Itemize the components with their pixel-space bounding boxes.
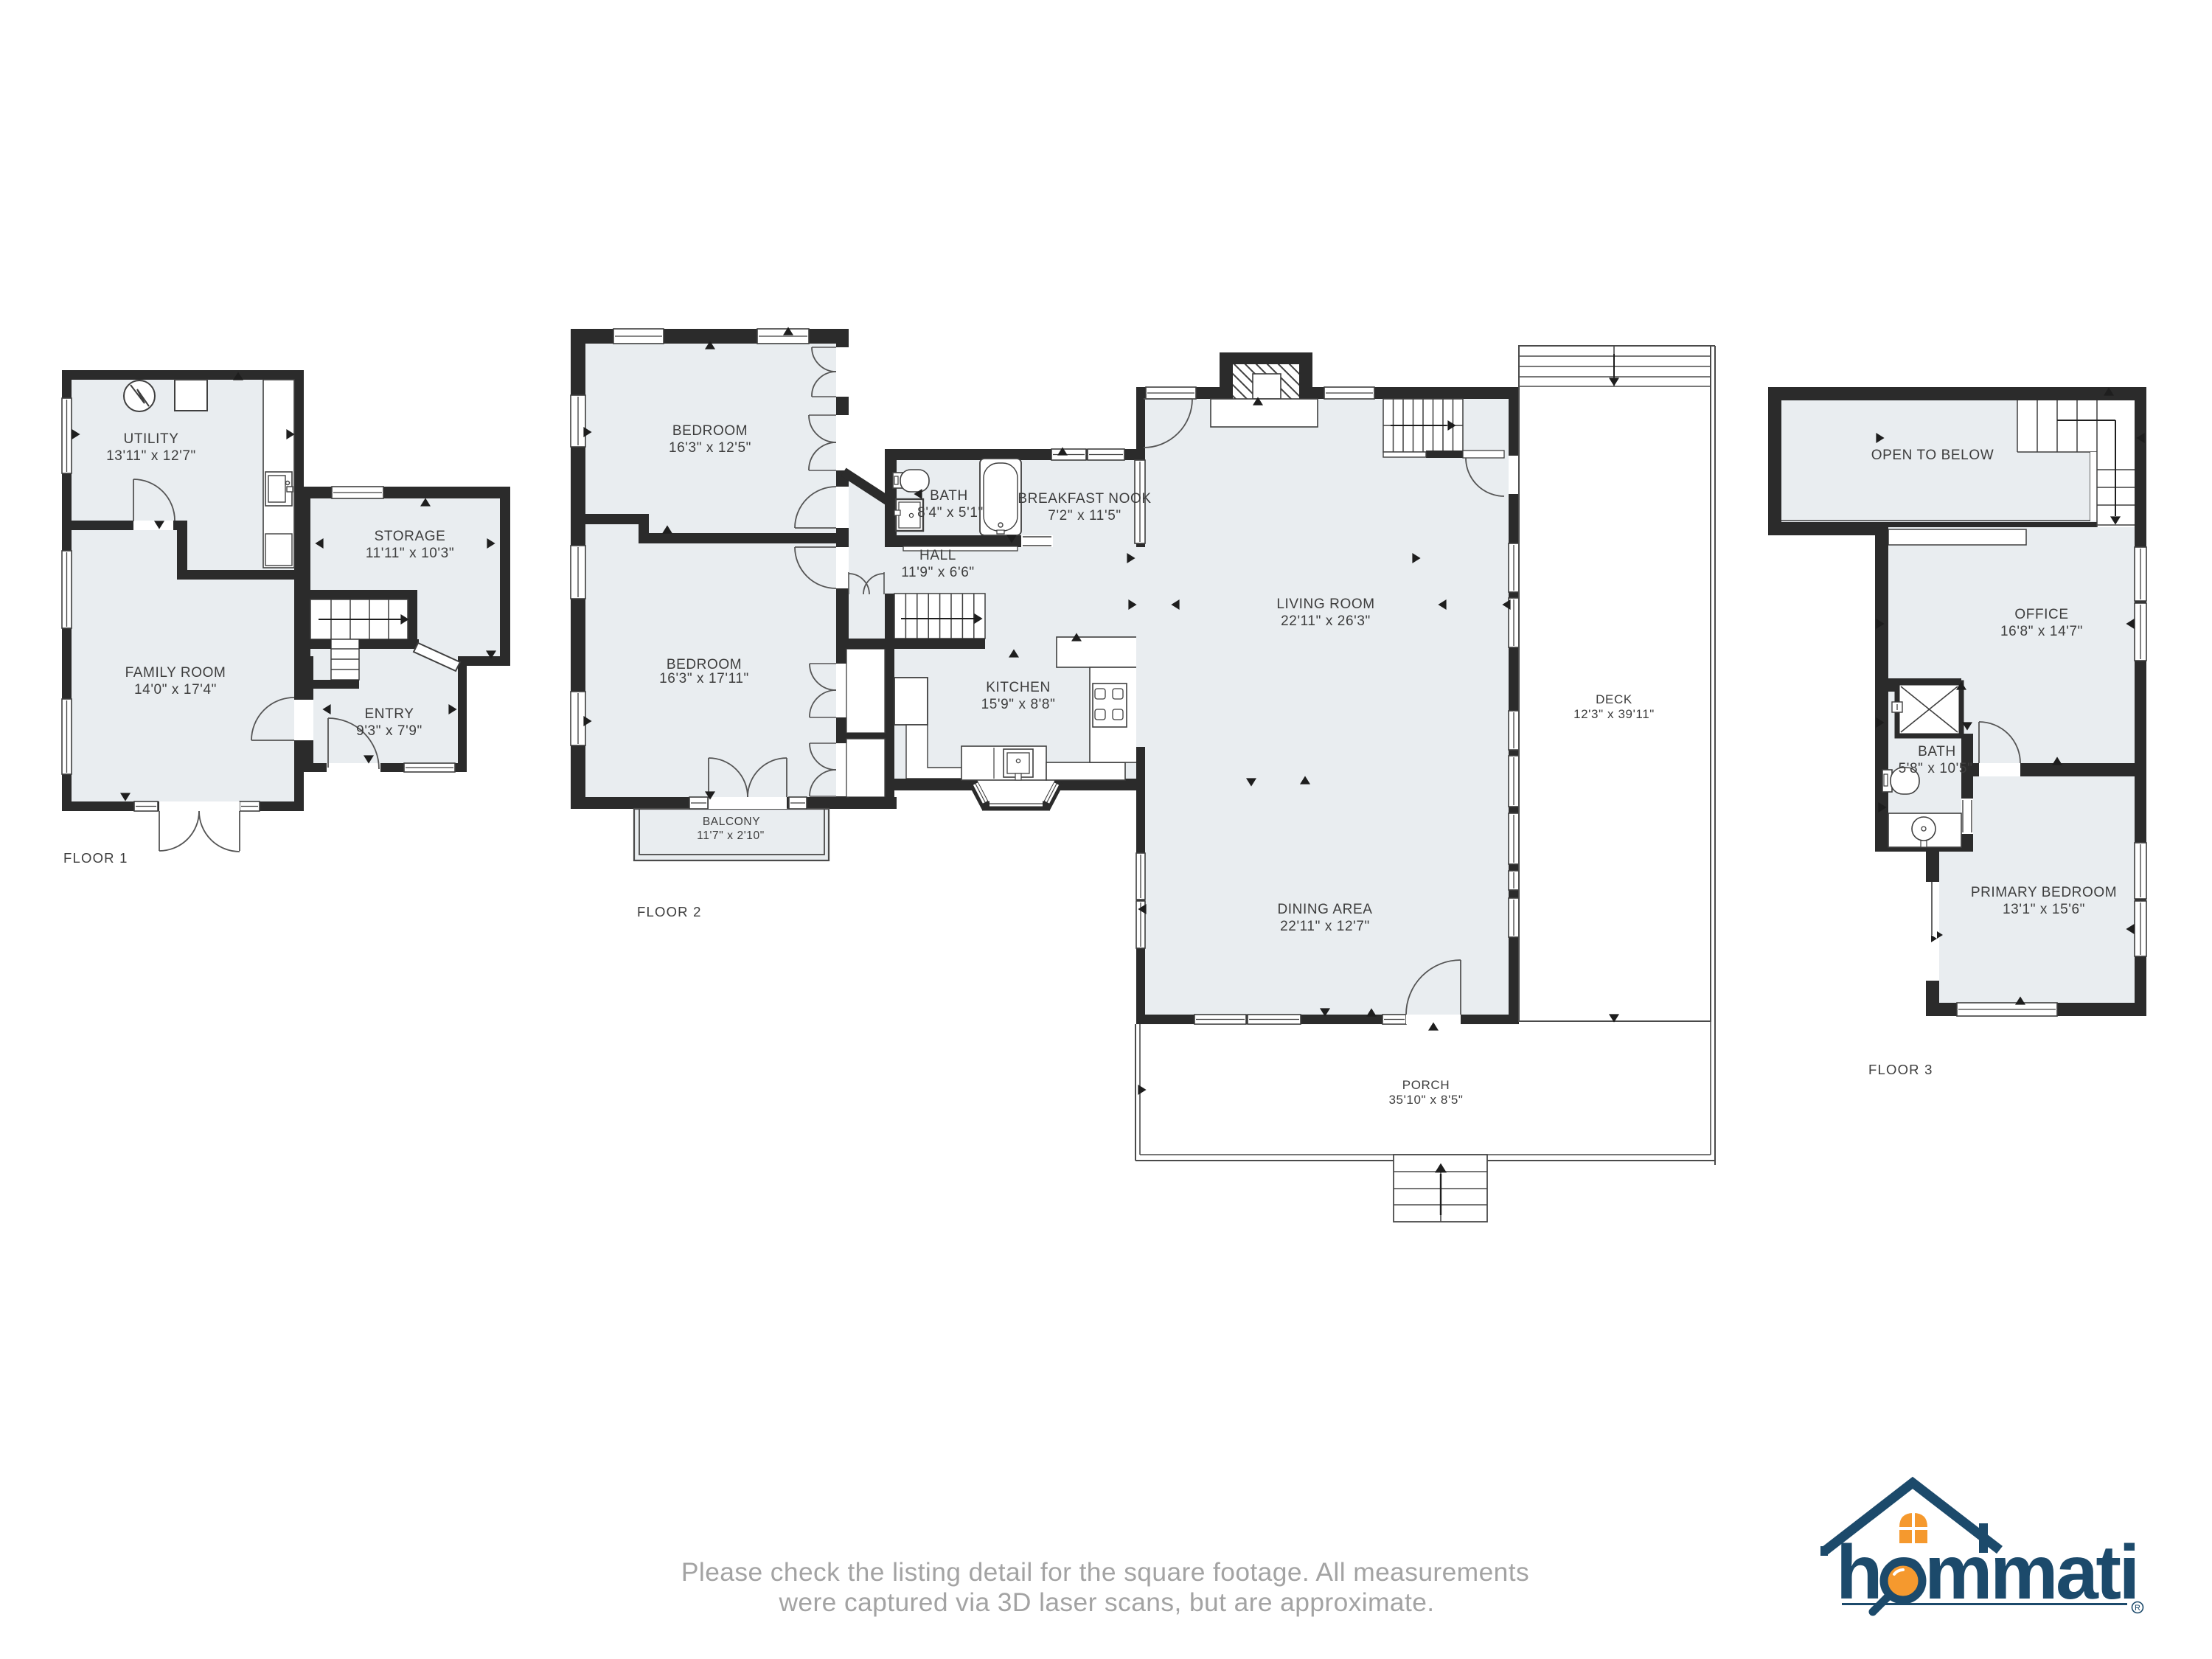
svg-text:were captured via 3D laser sca: were captured via 3D laser scans, but ar…: [778, 1587, 1434, 1617]
svg-text:16'8" x 14'7": 16'8" x 14'7": [2000, 624, 2083, 639]
svg-text:OFFICE: OFFICE: [2014, 607, 2068, 622]
svg-text:R: R: [2135, 1604, 2140, 1613]
svg-text:DINING AREA: DINING AREA: [1277, 902, 1372, 917]
svg-text:13'11" x 12'7": 13'11" x 12'7": [106, 448, 196, 464]
svg-text:BATH: BATH: [930, 488, 968, 504]
svg-text:FLOOR 3: FLOOR 3: [1868, 1062, 1933, 1077]
svg-text:11'7" x 2'10": 11'7" x 2'10": [697, 829, 765, 842]
svg-text:PRIMARY BEDROOM: PRIMARY BEDROOM: [1971, 885, 2117, 900]
svg-text:15'9" x 8'8": 15'9" x 8'8": [981, 697, 1056, 712]
svg-text:7'2" x 11'5": 7'2" x 11'5": [1048, 508, 1121, 524]
svg-text:22'11" x 26'3": 22'11" x 26'3": [1281, 613, 1371, 629]
svg-text:16'3" x 12'5": 16'3" x 12'5": [669, 440, 751, 456]
svg-text:BALCONY: BALCONY: [703, 815, 760, 828]
svg-text:ENTRY: ENTRY: [364, 706, 414, 722]
svg-text:DECK: DECK: [1596, 692, 1632, 706]
svg-text:FLOOR 2: FLOOR 2: [637, 904, 702, 919]
svg-text:PORCH: PORCH: [1402, 1078, 1450, 1092]
svg-text:FLOOR 1: FLOOR 1: [63, 850, 128, 866]
svg-text:STORAGE: STORAGE: [375, 529, 446, 544]
svg-text:OPEN TO BELOW: OPEN TO BELOW: [1871, 448, 1994, 463]
svg-text:UTILITY: UTILITY: [124, 431, 179, 447]
svg-text:BEDROOM: BEDROOM: [667, 657, 742, 672]
svg-text:BEDROOM: BEDROOM: [672, 423, 748, 439]
svg-text:5'8" x 10'5": 5'8" x 10'5": [1899, 761, 1973, 776]
svg-text:11'9" x 6'6": 11'9" x 6'6": [901, 565, 974, 580]
svg-text:9'3" x 7'9": 9'3" x 7'9": [356, 723, 422, 739]
svg-text:Please check the listing detai: Please check the listing detail for the …: [681, 1557, 1529, 1587]
svg-text:FAMILY ROOM: FAMILY ROOM: [125, 665, 226, 681]
svg-text:BREAKFAST NOOK: BREAKFAST NOOK: [1018, 491, 1151, 507]
svg-text:BATH: BATH: [1918, 744, 1956, 759]
svg-text:12'3" x 39'11": 12'3" x 39'11": [1573, 707, 1655, 721]
svg-text:HALL: HALL: [919, 548, 956, 563]
svg-text:13'1" x 15'6": 13'1" x 15'6": [2003, 902, 2085, 917]
svg-text:LIVING ROOM: LIVING ROOM: [1276, 597, 1374, 612]
svg-text:35'10" x 8'5": 35'10" x 8'5": [1388, 1093, 1463, 1107]
svg-text:14'0" x 17'4": 14'0" x 17'4": [134, 682, 217, 698]
svg-text:16'3" x 17'11": 16'3" x 17'11": [659, 671, 749, 686]
svg-text:KITCHEN: KITCHEN: [986, 680, 1051, 695]
svg-text:8'4" x 5'1": 8'4" x 5'1": [917, 505, 984, 521]
svg-text:22'11" x 12'7": 22'11" x 12'7": [1280, 919, 1370, 934]
svg-text:11'11" x 10'3": 11'11" x 10'3": [366, 546, 454, 561]
